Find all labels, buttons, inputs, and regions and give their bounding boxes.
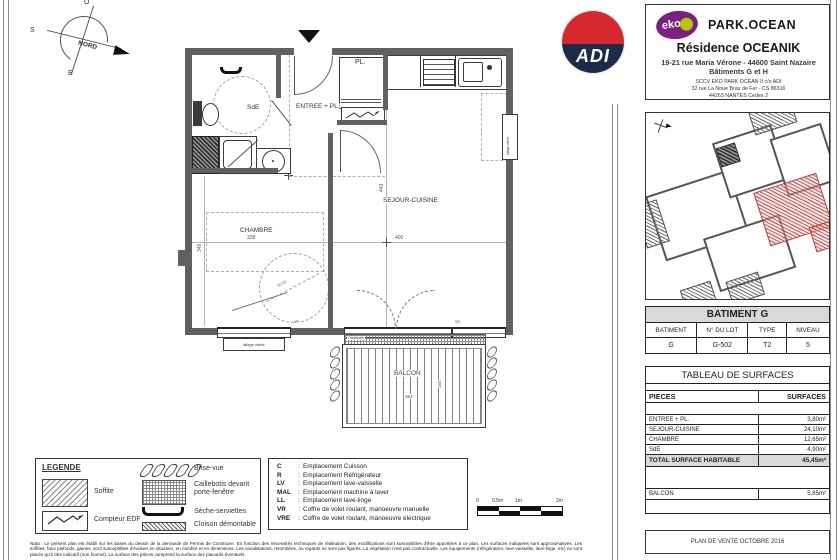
- lot-table: BATIMENT G BATIMENT N° DU LOT TYPE NIVEA…: [645, 306, 830, 354]
- interior-door-leaf: [340, 130, 341, 172]
- lot-value-batiment: G: [646, 338, 697, 353]
- site-plan-building: [645, 112, 830, 300]
- towel-dryer-icon: [220, 67, 242, 74]
- toilet-bowl-icon: [202, 103, 219, 126]
- abbr-row: C:Emplacement Cuisson: [277, 463, 467, 472]
- eko-logo: eko: [654, 8, 699, 42]
- abbr-row: R:Emplacement Réfrigérateur: [277, 472, 467, 481]
- interior-door-arc: [340, 130, 381, 173]
- abbr-label: Emplacement Réfrigérateur: [303, 472, 381, 481]
- entrance-marker-icon: [298, 30, 320, 43]
- sheet-border-left-inner: [8, 0, 9, 560]
- surface-col-surfaces: SURFACES: [759, 391, 829, 402]
- scale-bar-row-bottom: [478, 511, 562, 515]
- adi-logo-text: ADI: [561, 46, 625, 67]
- scale-bar: 0 0.5m 1m 2m: [476, 498, 572, 520]
- lot-col-numero: N° DU LOT: [697, 323, 748, 337]
- caillebotis-label: Caillebotis: [347, 336, 365, 340]
- surface-col-pieces: PIECES: [646, 391, 759, 402]
- abbr-key: MAL: [277, 489, 295, 498]
- right-wall-window: allège vitrée: [502, 114, 518, 160]
- scale-label-2: 2m: [556, 498, 563, 504]
- edf-meter-box: [341, 107, 385, 121]
- dim-chambre-height: 349: [197, 244, 203, 252]
- surface-total-value: 45,45m²: [759, 455, 829, 466]
- sheet-border-right-inner: [836, 0, 837, 560]
- eko-logo-text: eko: [661, 18, 681, 33]
- wall-left-pilaster: [178, 250, 186, 266]
- lot-value-niveau: 5: [787, 338, 829, 353]
- seche-serviettes-swatch-icon: [142, 507, 184, 516]
- french-door-arc-left: [357, 290, 396, 329]
- abbr-label: Coffre de volet roulant, manoeuvre manue…: [303, 506, 429, 515]
- closet-shelf-line: [341, 102, 381, 103]
- abbr-key: R: [277, 472, 295, 481]
- sde-turning-circle: [213, 76, 271, 134]
- compass-north-arrow-icon: [113, 45, 131, 59]
- wall-top-right: [332, 48, 513, 55]
- legend-brise-vue-label: Brise-vue: [194, 465, 224, 472]
- sccv-line2: 32 rue La Noue Bras de Fer - CS 86316: [646, 86, 831, 92]
- wall-left: [185, 48, 192, 335]
- wall-entree-right: [383, 48, 388, 110]
- sink-tap: [487, 65, 492, 70]
- legend-title: LEGENDE: [42, 463, 81, 472]
- surface-row-piece: SEJOUR-CUISINE: [646, 425, 759, 434]
- abbr-label: Emplacement lave-linge: [303, 497, 371, 506]
- room-label-placard: PL.: [355, 59, 366, 66]
- abbr-label: Coffre de volet roulant, manoeuvre élect…: [303, 515, 431, 524]
- abbr-row: VRE:Coffre de volet roulant, manoeuvre é…: [277, 515, 467, 524]
- surface-row-piece: CHAMBRE: [646, 435, 759, 444]
- entree-zone-dashed-line: [289, 176, 385, 177]
- cloison-swatch-icon: [142, 522, 186, 531]
- room-label-entree: ENTREE + PL.: [296, 103, 340, 110]
- room-label-chambre: CHAMBRE: [240, 227, 273, 234]
- abbr-key: VRE: [277, 515, 295, 524]
- legend-cloison-label: Cloison démontable: [194, 521, 256, 528]
- abbr-key: LV: [277, 480, 295, 489]
- soffite-swatch-icon: [42, 479, 88, 507]
- titleblock-box: eko PARK.OCEAN Résidence OCEANIK 19-21 r…: [645, 4, 830, 100]
- entrance-door-leaf: [294, 56, 295, 95]
- abbr-label: Emplacement machine à laver: [303, 489, 389, 498]
- compass-west-label: O: [84, 0, 89, 6]
- entrance-door-arc: [294, 56, 333, 95]
- surface-row-value: 12,65m²: [759, 435, 829, 444]
- french-door-arc-right: [396, 290, 435, 329]
- scale-label-1: 1m: [515, 498, 522, 504]
- abbr-row: VR:Coffre de volet roulant, manoeuvre ma…: [277, 506, 467, 515]
- surface-balcon-value: 5,85m²: [759, 489, 829, 499]
- adi-logo: ADI: [561, 10, 625, 74]
- residence-title: Résidence OCEANIK: [646, 41, 831, 55]
- lot-table-title: BATIMENT G: [646, 307, 829, 323]
- abbr-label: Emplacement lave-vaisselle: [303, 480, 382, 489]
- kitchen-counter-divider: [420, 56, 421, 87]
- wall-right: [506, 48, 513, 335]
- vr-tag-sejour: VR: [455, 320, 460, 324]
- shower-inner: [223, 140, 252, 169]
- sccv-line1: SCCV EKO PARK OCEAN II c/o ADI: [646, 79, 831, 85]
- site-compass-icon: [654, 119, 668, 133]
- surface-row-piece: SdE: [646, 445, 759, 454]
- abbreviations-box: C:Emplacement Cuisson R:Emplacement Réfr…: [268, 458, 468, 530]
- compass-east-label: E: [68, 70, 73, 77]
- surface-balcon-label: BALCON: [646, 489, 759, 499]
- brise-vue-coil-left: [330, 347, 340, 402]
- compass-rose-icon: O S E NORD: [22, 0, 142, 80]
- site-balcony-gray: [680, 281, 718, 300]
- plan-ref-label: PLAN DE VENTE OCTOBRE 2016: [691, 539, 785, 545]
- surface-row-piece: ENTREE + PL.: [646, 415, 759, 424]
- surface-row-value: 24,10m²: [759, 425, 829, 434]
- brand-title: PARK.OCEAN: [708, 18, 796, 32]
- closet-shelf-line: [341, 99, 381, 100]
- lot-value-numero: G-502: [697, 338, 748, 353]
- vr-tag-chambre: VR: [294, 320, 299, 324]
- allege-vitree-vertical-label: allège vitrée: [506, 137, 510, 155]
- surface-table-spacer: [646, 403, 829, 415]
- lot-col-batiment: BATIMENT: [646, 323, 697, 337]
- legend-soffite-label: Soffite: [94, 488, 114, 495]
- abbr-key: C: [277, 463, 295, 472]
- legend-compteur-label: Compteur EDF: [94, 516, 141, 523]
- brise-vue-coil-right: [487, 347, 497, 402]
- washbasin-drain: [272, 160, 274, 162]
- scale-bar-segments: [477, 506, 563, 516]
- footer-note: Nota : Le présent plan est établi sur le…: [30, 541, 582, 557]
- residence-address: 19-21 rue Maria Vérone - 44600 Saint Naz…: [646, 58, 831, 67]
- wall-chambre-sejour: [328, 133, 333, 328]
- edf-meter-swatch-icon: [42, 511, 88, 531]
- surface-row-value: 3,80m²: [759, 415, 829, 424]
- dim-balcon-width: 364: [404, 394, 414, 399]
- dim-balcon-height: 160: [437, 380, 442, 388]
- surface-table-spacer: [646, 384, 829, 391]
- sheet-border-left-outer: [3, 0, 4, 560]
- allege-vitree-label: allège vitrée: [243, 342, 265, 347]
- sink-basin: [463, 62, 483, 82]
- abbr-row: MAL:Emplacement machine à laver: [277, 489, 467, 498]
- scale-label-05: 0.5m: [492, 498, 503, 504]
- balcon-decking: [346, 348, 482, 424]
- toilet-tank-icon: [193, 101, 202, 126]
- plan-ref-box: PLAN DE VENTE OCTOBRE 2016: [645, 530, 830, 554]
- surface-total-label: TOTAL SURFACE HABITABLE: [646, 455, 759, 466]
- room-label-sejour: SEJOUR-CUISINE: [383, 197, 438, 204]
- window-glazing-line: [218, 333, 290, 334]
- chambre-window: [217, 327, 291, 338]
- compass-south-label: S: [30, 27, 35, 34]
- hob-icon: [423, 59, 455, 86]
- legend-seche-label: Sèche-serviettes: [194, 508, 246, 515]
- wall-sde-bottom: [190, 168, 278, 173]
- legend-box: LEGENDE Soffite Compteur EDF Brise-vue C…: [35, 458, 261, 534]
- dim-line-vertical-chambre: [204, 176, 205, 326]
- abbr-row: LV:Emplacement lave-vaisselle: [277, 480, 467, 489]
- caillebotis-swatch-icon: [142, 480, 186, 505]
- kitchen-counter-divider: [455, 56, 456, 87]
- sccv-line3: 44263 NANTES Cedex 2: [646, 93, 831, 99]
- abbr-key: VR: [277, 506, 295, 515]
- scale-label-0: 0: [476, 498, 479, 504]
- wall-sde-right: [276, 48, 281, 98]
- surface-table-spacer: [646, 467, 829, 489]
- eko-logo-dot-icon: [679, 17, 694, 32]
- plan-de-vente-sheet: O S E NORD 328 400 443 349: [0, 0, 840, 560]
- titleblock-separator-inner: [617, 104, 618, 560]
- surface-table: TABLEAU DE SURFACES PIECES SURFACES ENTR…: [645, 366, 830, 514]
- lot-col-niveau: NIVEAU: [787, 323, 829, 337]
- room-label-sde: SdE: [247, 104, 259, 111]
- dim-sejour-height: 443: [379, 184, 385, 192]
- abbr-key: LL: [277, 497, 295, 506]
- dim-sejour-width: 400: [394, 235, 404, 241]
- legend-caillebotis-label: Caillebotis devant porte-fenêtre: [194, 481, 260, 497]
- surface-table-title: TABLEAU DE SURFACES: [646, 367, 829, 384]
- wall-closet-bottom: [337, 120, 387, 125]
- allege-vitree-box: allège vitrée: [223, 338, 285, 351]
- lot-col-type: TYPE: [748, 323, 786, 337]
- site-plan-box: [645, 112, 830, 300]
- abbr-label: Emplacement Cuisson: [303, 463, 367, 472]
- dim-cross-mark: [382, 238, 391, 247]
- abbr-row: LL:Emplacement lave-linge: [277, 497, 467, 506]
- room-label-balcon: BALCON: [392, 370, 423, 377]
- surface-row-value: 4,90m²: [759, 445, 829, 454]
- titleblock-separator-outer: [612, 104, 613, 560]
- lot-value-type: T2: [748, 338, 786, 353]
- residence-buildings: Bâtiments G et H: [646, 67, 831, 76]
